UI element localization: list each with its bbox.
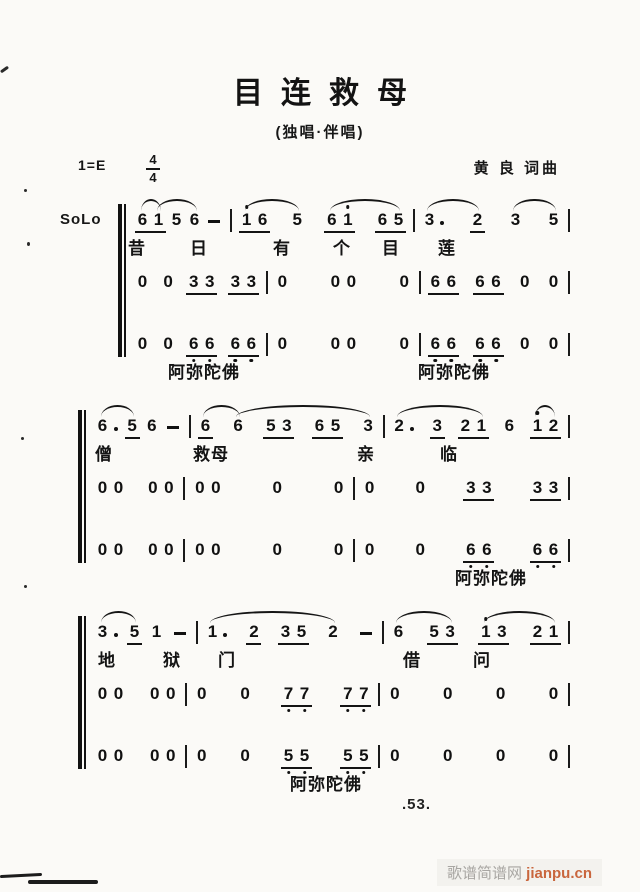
measure: 003333 <box>128 260 266 295</box>
note: 6 <box>531 540 544 560</box>
note: 5 <box>126 416 139 436</box>
note-group <box>164 416 182 439</box>
barline <box>568 415 570 438</box>
note: 7 <box>298 684 311 704</box>
slur-arc <box>101 611 137 623</box>
beam-group: 53 <box>427 622 458 645</box>
note-group: 6 <box>144 416 159 439</box>
note-group: 0 <box>238 684 253 707</box>
note-group: 0 <box>546 746 561 769</box>
note-group: 0 <box>387 684 402 707</box>
staff-row: 00000000003333 <box>88 466 570 501</box>
lyrics-row: 僧救母亲临 <box>88 440 570 460</box>
beam-group: 13 <box>478 622 509 645</box>
slur-arc <box>397 405 483 417</box>
note: 5 <box>428 622 441 642</box>
note: 6 <box>203 334 216 354</box>
note: 1 <box>152 210 165 230</box>
measure: 351 <box>88 610 196 645</box>
measure: 2321612 <box>385 404 568 439</box>
chorus-staff-2: 0066660000666600阿弥陀佛阿弥陀佛 <box>128 322 570 378</box>
note: 3 <box>279 622 292 642</box>
lyric-syllable: 莲 <box>438 234 456 259</box>
note: 0 <box>193 540 206 560</box>
note: 5 <box>170 210 183 230</box>
note: 0 <box>96 746 109 766</box>
note: 6 <box>245 334 258 354</box>
note: 2 <box>247 622 260 642</box>
note: 0 <box>276 334 289 354</box>
lyrics-row: 阿弥陀佛 <box>88 564 570 584</box>
note: 6 <box>429 272 442 292</box>
note: 0 <box>398 334 411 354</box>
barline <box>568 539 570 562</box>
slur-arc <box>101 405 135 417</box>
beam-group: 66 <box>428 334 459 357</box>
slur-arc <box>535 405 555 417</box>
note-group: 00 <box>95 540 126 563</box>
staff-row: 351123526531321 <box>88 610 570 645</box>
slur-arc <box>203 405 240 417</box>
lyric-syllable: 阿弥陀佛 <box>455 564 527 589</box>
note: 6 <box>445 334 458 354</box>
note: 2 <box>547 416 560 436</box>
note: 1 <box>240 210 253 230</box>
note-group: 0 <box>517 334 532 357</box>
note-group: 6 <box>391 622 406 645</box>
note: 0 <box>441 746 454 766</box>
lyric-syllable: 目 <box>382 234 400 259</box>
note: 6 <box>392 622 405 642</box>
note: 6 <box>188 210 201 230</box>
note-group: 5 <box>546 210 561 233</box>
note: 5 <box>291 210 304 230</box>
note-group: 6 <box>95 416 120 439</box>
system-3: 351123526531321地狱门借问00000077770000000000… <box>78 610 570 790</box>
beam-group: 2 <box>246 622 261 645</box>
note-group: 0 <box>546 684 561 707</box>
measure: 656 <box>88 404 189 439</box>
note: 0 <box>136 272 149 292</box>
measure: 0000 <box>268 322 419 357</box>
meta-row: 1=E 4 4 黄 良 词曲 <box>0 157 640 184</box>
note: 6 <box>490 334 503 354</box>
note: 3 <box>509 210 522 230</box>
measure: 0000 <box>380 734 568 769</box>
note: 1 <box>341 210 354 230</box>
note-group: 0 <box>440 746 455 769</box>
note: 6 <box>136 210 149 230</box>
note: 3 <box>480 478 493 498</box>
beam-group: 66 <box>530 540 561 563</box>
measure: 1656165 <box>232 198 413 233</box>
note: 0 <box>388 684 401 704</box>
note-group: 0 <box>440 684 455 707</box>
system-1: SoLo615616561653235昔日有个目莲003333000066660… <box>118 198 570 378</box>
solo-staff: 615616561653235昔日有个目莲 <box>128 198 570 254</box>
note-group: 0 <box>546 334 561 357</box>
print-artifact <box>0 873 42 878</box>
watermark-site-name: 歌谱简谱网 <box>447 865 522 882</box>
measure: 0000 <box>185 466 353 501</box>
note: 3 <box>362 416 375 436</box>
barline <box>568 333 570 356</box>
beam-group: 55 <box>281 746 312 769</box>
chorus-staff-1: 00000000003333 <box>88 466 570 522</box>
beam-group: 66 <box>473 272 504 295</box>
note-group: 0 <box>397 272 412 295</box>
note: 0 <box>345 334 358 354</box>
note: 0 <box>209 540 222 560</box>
note-group: 0 <box>275 272 290 295</box>
lyric-syllable: 地 <box>98 646 116 671</box>
note: 0 <box>195 684 208 704</box>
note-group: 3 <box>361 416 376 439</box>
note: 0 <box>162 478 175 498</box>
note: 1 <box>547 622 560 642</box>
page-number: .53. <box>402 796 431 813</box>
note: 5 <box>128 622 141 642</box>
note-group: 0 <box>362 540 377 563</box>
note: 6 <box>490 272 503 292</box>
note: 6 <box>229 334 242 354</box>
beam-group: 5 <box>125 416 140 439</box>
staff-row: 0066660000666600 <box>128 322 570 357</box>
note: 0 <box>112 746 125 766</box>
chorus-staff-2: 00000055550000阿弥陀佛 <box>88 734 570 790</box>
note: 0 <box>518 272 531 292</box>
note: 3 <box>203 272 216 292</box>
slur-arc <box>236 405 370 417</box>
note-group: 00 <box>328 272 359 295</box>
note-group: 0 <box>161 272 176 295</box>
note: 0 <box>329 272 342 292</box>
note-group: 1 <box>149 622 164 645</box>
lyric-syllable: 昔 <box>128 234 146 259</box>
barline <box>568 209 570 232</box>
beam-group: 33 <box>228 272 259 295</box>
measure: 007777 <box>187 672 378 707</box>
beam-group: 55 <box>340 746 371 769</box>
note: 3 <box>464 478 477 498</box>
note: 0 <box>239 684 252 704</box>
beam-group: 33 <box>186 272 217 295</box>
augmentation-dot <box>409 416 416 436</box>
watermark: 歌谱简谱网 jianpu.cn <box>437 859 602 886</box>
note: 0 <box>195 746 208 766</box>
barline <box>568 477 570 500</box>
beam-group: 21 <box>530 622 561 645</box>
measure: 005555 <box>187 734 378 769</box>
measure: 0000 <box>380 672 568 707</box>
note: 0 <box>276 272 289 292</box>
note: 6 <box>376 210 389 230</box>
beam-group: 65 <box>375 210 406 233</box>
lyrics-row: 昔日有个目莲 <box>128 234 570 254</box>
chorus-staff-1: 0033330000666600 <box>128 260 570 316</box>
beam-group: 21 <box>458 416 489 439</box>
dash-note <box>358 622 374 642</box>
note-group: 0 <box>270 540 285 563</box>
note: 6 <box>232 416 245 436</box>
note-group <box>171 622 189 645</box>
print-artifact <box>28 880 98 884</box>
note: 1 <box>206 622 219 642</box>
slur-arc <box>245 199 300 211</box>
note: 5 <box>298 746 311 766</box>
note-group <box>205 210 223 233</box>
note: 0 <box>239 746 252 766</box>
system-2: 65666536532321612僧救母亲临000000000033330000… <box>78 404 570 584</box>
note-group: 0 <box>135 334 150 357</box>
note: 1 <box>531 416 544 436</box>
slur-arc <box>396 611 452 623</box>
augmentation-dot <box>112 416 119 436</box>
note: 6 <box>445 272 458 292</box>
note: 0 <box>329 334 342 354</box>
lyric-syllable: 救母 <box>193 440 229 465</box>
note: 2 <box>459 416 472 436</box>
note-group: 0 <box>331 478 346 501</box>
note: 0 <box>164 746 177 766</box>
note-group: 0 <box>517 272 532 295</box>
note-group: 00 <box>95 684 126 707</box>
note: 0 <box>414 478 427 498</box>
augmentation-dot <box>112 622 119 642</box>
note: 2 <box>531 622 544 642</box>
note-group: 0 <box>275 334 290 357</box>
measure: 0000 <box>88 734 185 769</box>
note: 0 <box>96 540 109 560</box>
note: 0 <box>162 540 175 560</box>
note: 0 <box>112 478 125 498</box>
note: 0 <box>164 684 177 704</box>
note: 5 <box>329 416 342 436</box>
print-artifact <box>24 585 27 588</box>
note-group: 3 <box>95 622 120 645</box>
note: 0 <box>96 684 109 704</box>
lyric-syllable: 阿弥陀佛 <box>418 358 490 383</box>
note: 0 <box>494 746 507 766</box>
barline <box>568 271 570 294</box>
note: 0 <box>146 540 159 560</box>
measure: 0000 <box>88 466 183 501</box>
lyric-syllable: 临 <box>440 440 458 465</box>
lyric-syllable: 日 <box>190 234 208 259</box>
note: 0 <box>193 478 206 498</box>
barline <box>568 683 570 706</box>
note: 3 <box>531 478 544 498</box>
beam-group: 2 <box>470 210 485 233</box>
note-group: 00 <box>95 478 126 501</box>
note: 0 <box>209 478 222 498</box>
note: 0 <box>148 684 161 704</box>
note: 0 <box>136 334 149 354</box>
note: 6 <box>256 210 269 230</box>
beam-group: 53 <box>263 416 294 439</box>
note: 3 <box>280 416 293 436</box>
lyric-syllable: 狱 <box>163 646 181 671</box>
lyric-syllable: 问 <box>473 646 491 671</box>
note-group: 0 <box>413 478 428 501</box>
note-group: 5 <box>290 210 305 233</box>
lyric-syllable: 亲 <box>357 440 375 465</box>
note: 0 <box>494 684 507 704</box>
slur-arc <box>513 199 555 211</box>
note: 2 <box>471 210 484 230</box>
barline <box>568 745 570 768</box>
note: 6 <box>547 540 560 560</box>
key-signature: 1=E <box>78 157 106 173</box>
note: 0 <box>363 540 376 560</box>
note: 0 <box>162 334 175 354</box>
staff-row: 00000055550000 <box>88 734 570 769</box>
note: 1 <box>479 622 492 642</box>
score-title: 目连救母 <box>0 68 640 112</box>
note-group: 00 <box>145 540 176 563</box>
note-group: 2 <box>392 416 417 439</box>
note: 2 <box>326 622 339 642</box>
note: 0 <box>146 478 159 498</box>
beam-group: 35 <box>278 622 309 645</box>
time-signature-numerator: 4 <box>146 153 159 170</box>
note: 3 <box>187 272 200 292</box>
measure: 003333 <box>355 466 568 501</box>
note: 5 <box>357 746 370 766</box>
note: 3 <box>495 622 508 642</box>
note: 0 <box>388 746 401 766</box>
solo-label: SoLo <box>60 211 102 228</box>
note-group: 0 <box>493 746 508 769</box>
staff-row: 00000077770000 <box>88 672 570 707</box>
measure: 0000 <box>88 528 183 563</box>
measure: 006666 <box>355 528 568 563</box>
note-group: 6 <box>187 210 202 233</box>
lyrics-row: 阿弥陀佛 <box>88 770 570 790</box>
dash-note <box>206 210 222 230</box>
barline <box>568 621 570 644</box>
note-group: 0 <box>413 540 428 563</box>
note: 3 <box>431 416 444 436</box>
note-group: 2 <box>325 622 340 645</box>
note: 6 <box>474 334 487 354</box>
measure: 0000 <box>88 672 185 707</box>
beam-group: 5 <box>127 622 142 645</box>
note-group: 00 <box>147 746 178 769</box>
staff-row: 00000000006666 <box>88 528 570 563</box>
note-group: 6 <box>502 416 517 439</box>
slur-arc <box>157 199 197 211</box>
note: 0 <box>547 684 560 704</box>
note: 0 <box>332 478 345 498</box>
beam-group: 66 <box>463 540 494 563</box>
lyrics-row <box>128 296 570 316</box>
note: 5 <box>547 210 560 230</box>
augmentation-dot <box>439 210 446 230</box>
system-bracket <box>118 204 126 357</box>
lyric-syllable: 门 <box>218 646 236 671</box>
note: 5 <box>341 746 354 766</box>
note: 6 <box>464 540 477 560</box>
measure: 666600 <box>421 322 568 357</box>
slur-arc <box>210 611 335 623</box>
note-group: 0 <box>493 684 508 707</box>
lyrics-row <box>88 502 570 522</box>
note: 6 <box>145 416 158 436</box>
print-artifact <box>21 437 24 440</box>
chorus-staff-2: 00000000006666阿弥陀佛 <box>88 528 570 584</box>
slur-arc <box>484 611 556 623</box>
measure: 6531321 <box>384 610 568 645</box>
measure: 6653653 <box>191 404 383 439</box>
measure: 6156 <box>128 198 230 233</box>
note: 1 <box>150 622 163 642</box>
print-artifact <box>24 189 27 192</box>
watermark-site-url: jianpu.cn <box>526 865 592 882</box>
lyric-syllable: 个 <box>333 234 351 259</box>
score: SoLo615616561653235昔日有个目莲003333000066660… <box>78 198 570 790</box>
solo-staff: 351123526531321地狱门借问 <box>88 610 570 666</box>
lyrics-row <box>88 708 570 728</box>
note-group: 1 <box>205 622 230 645</box>
key-and-meter: 1=E 4 4 <box>78 157 160 184</box>
note-group: 0 <box>194 684 209 707</box>
time-signature: 4 4 <box>146 153 159 184</box>
note: 6 <box>325 210 338 230</box>
note-group: 0 <box>135 272 150 295</box>
note: 0 <box>414 540 427 560</box>
dash-note <box>165 416 181 436</box>
print-artifact <box>27 242 30 246</box>
note: 7 <box>341 684 354 704</box>
augmentation-dot <box>222 622 229 642</box>
measure: 006666 <box>128 322 266 357</box>
measure: 12352 <box>198 610 382 645</box>
note: 6 <box>480 540 493 560</box>
slur-arc <box>427 199 479 211</box>
note-group: 0 <box>331 540 346 563</box>
note-group: 0 <box>238 746 253 769</box>
note: 7 <box>282 684 295 704</box>
note: 1 <box>475 416 488 436</box>
staff-row: 0033330000666600 <box>128 260 570 295</box>
note: 3 <box>444 622 457 642</box>
beam-group: 66 <box>186 334 217 357</box>
staff-row: 615616561653235 <box>128 198 570 233</box>
note: 6 <box>313 416 326 436</box>
beam-group: 61 <box>324 210 355 233</box>
time-signature-denominator: 4 <box>149 170 156 184</box>
note: 3 <box>547 478 560 498</box>
beam-group: 61 <box>135 210 166 233</box>
note: 6 <box>429 334 442 354</box>
note: 0 <box>271 478 284 498</box>
note: 5 <box>264 416 277 436</box>
staff-row: 65666536532321612 <box>88 404 570 439</box>
note-group: 3 <box>508 210 523 233</box>
score-subtitle: (独唱·伴唱) <box>0 121 640 142</box>
beam-group: 65 <box>312 416 343 439</box>
lyric-syllable: 有 <box>273 234 291 259</box>
beam-group: 77 <box>340 684 371 707</box>
measure: 3235 <box>415 198 568 233</box>
note: 2 <box>393 416 406 436</box>
slur-arc <box>330 199 401 211</box>
beam-group: 66 <box>473 334 504 357</box>
beam-group: 33 <box>463 478 494 501</box>
lyric-syllable: 借 <box>403 646 421 671</box>
note-group: 0 <box>397 334 412 357</box>
